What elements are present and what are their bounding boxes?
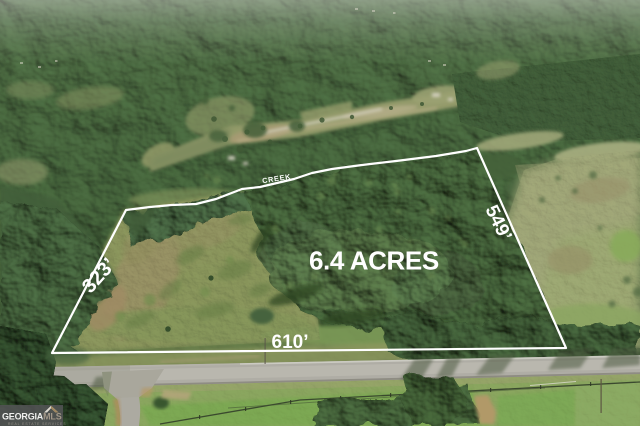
svg-text:610’: 610’ (272, 332, 309, 353)
svg-text:6.4 ACRES: 6.4 ACRES (309, 246, 439, 276)
svg-text:GEORGIAMLS: GEORGIAMLS (2, 412, 62, 422)
svg-text:REAL ESTATE SERVICES: REAL ESTATE SERVICES (8, 422, 66, 426)
